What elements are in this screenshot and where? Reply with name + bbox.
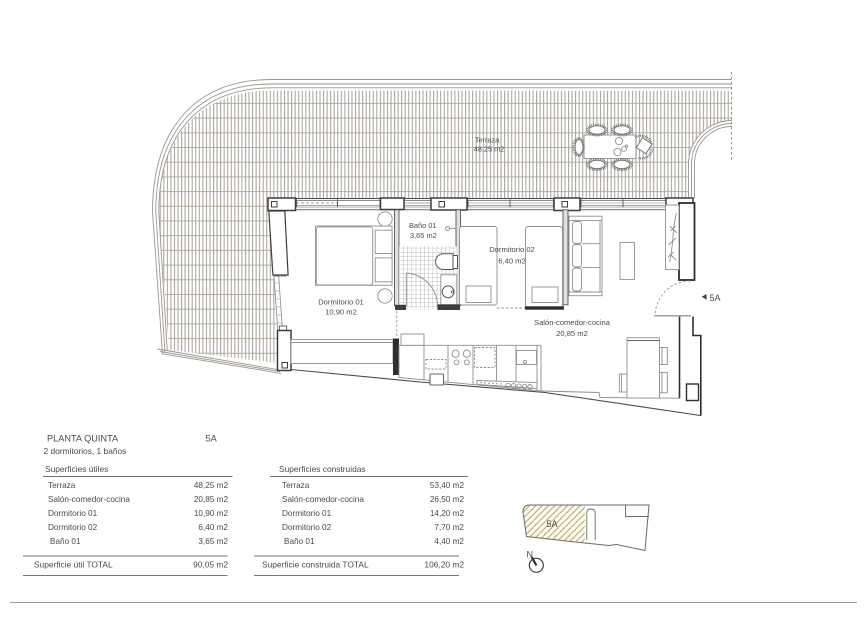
svg-text:Salón-comedor-cocina: Salón-comedor-cocina	[282, 495, 364, 504]
svg-text:Salón-comedor-cocina: Salón-comedor-cocina	[48, 495, 130, 504]
svg-text:3,65 m2: 3,65 m2	[198, 537, 228, 546]
svg-text:Baño 01: Baño 01	[50, 537, 81, 546]
svg-text:Terraza: Terraza	[282, 481, 310, 490]
svg-text:2 dormitorios, 1 baños: 2 dormitorios, 1 baños	[44, 446, 127, 456]
svg-text:53,40 m2: 53,40 m2	[430, 481, 465, 490]
svg-text:Dormitorio 01: Dormitorio 01	[48, 509, 98, 518]
svg-text:Dormitorio 01: Dormitorio 01	[282, 509, 332, 518]
svg-text:Baño 01: Baño 01	[284, 537, 315, 546]
svg-text:5A: 5A	[206, 434, 218, 444]
svg-text:Salón-comedor-cocina: Salón-comedor-cocina	[534, 318, 611, 327]
svg-text:3,65 m2: 3,65 m2	[410, 231, 437, 240]
svg-text:Dormitorio 02: Dormitorio 02	[48, 523, 98, 532]
svg-text:PLANTA QUINTA: PLANTA QUINTA	[47, 434, 119, 444]
svg-text:Superficie construida TOTAL: Superficie construida TOTAL	[262, 560, 369, 570]
svg-text:26,50 m2: 26,50 m2	[430, 495, 465, 504]
svg-text:10,90 m2: 10,90 m2	[325, 308, 357, 317]
svg-text:6,40 m2: 6,40 m2	[198, 523, 228, 532]
svg-text:Superficie útil TOTAL: Superficie útil TOTAL	[34, 560, 113, 570]
svg-text:20,85 m2: 20,85 m2	[556, 329, 588, 338]
svg-text:Baño 01: Baño 01	[409, 221, 437, 230]
svg-text:Terraza: Terraza	[475, 136, 500, 145]
svg-text:Dormitorio 01: Dormitorio 01	[318, 298, 364, 307]
svg-text:106,20 m2: 106,20 m2	[424, 560, 464, 570]
svg-text:Superficies útiles: Superficies útiles	[45, 464, 108, 474]
svg-text:7,70 m2: 7,70 m2	[434, 523, 464, 532]
svg-text:6,40 m2: 6,40 m2	[498, 257, 525, 266]
svg-text:20,85 m2: 20,85 m2	[194, 495, 229, 504]
svg-text:5A: 5A	[546, 519, 558, 529]
svg-text:Dormitorio 02: Dormitorio 02	[282, 523, 332, 532]
svg-text:14,20 m2: 14,20 m2	[430, 509, 465, 518]
svg-text:4,40 m2: 4,40 m2	[434, 537, 464, 546]
svg-text:48,25 m2: 48,25 m2	[474, 144, 504, 153]
svg-text:48,25 m2: 48,25 m2	[194, 481, 229, 490]
svg-text:Terraza: Terraza	[48, 481, 76, 490]
svg-text:5A: 5A	[710, 293, 721, 303]
svg-text:90,05 m2: 90,05 m2	[193, 560, 228, 570]
svg-text:10,90 m2: 10,90 m2	[194, 509, 229, 518]
svg-text:Superficies construidas: Superficies construidas	[279, 464, 366, 474]
svg-text:Dormitorio 02: Dormitorio 02	[489, 245, 535, 254]
